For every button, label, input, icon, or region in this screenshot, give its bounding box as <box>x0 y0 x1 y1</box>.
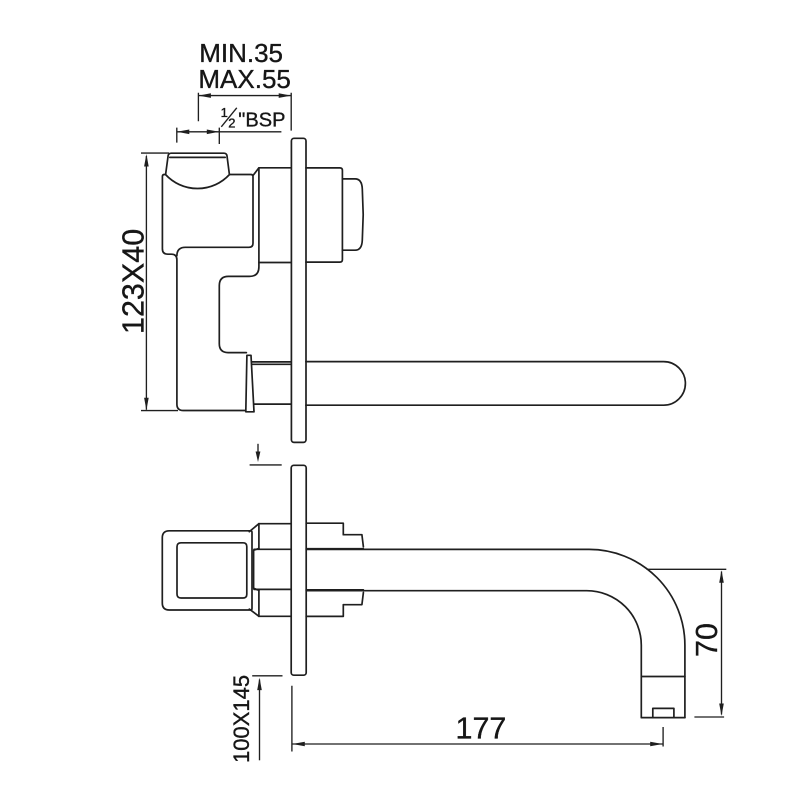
svg-text:"BSP: "BSP <box>238 110 285 132</box>
svg-text:1: 1 <box>221 105 228 120</box>
svg-text:100X145: 100X145 <box>229 675 254 763</box>
svg-text:123X40: 123X40 <box>117 229 151 334</box>
svg-text:177: 177 <box>456 711 507 745</box>
svg-text:70: 70 <box>690 623 724 657</box>
svg-text:MAX.55: MAX.55 <box>198 64 291 94</box>
